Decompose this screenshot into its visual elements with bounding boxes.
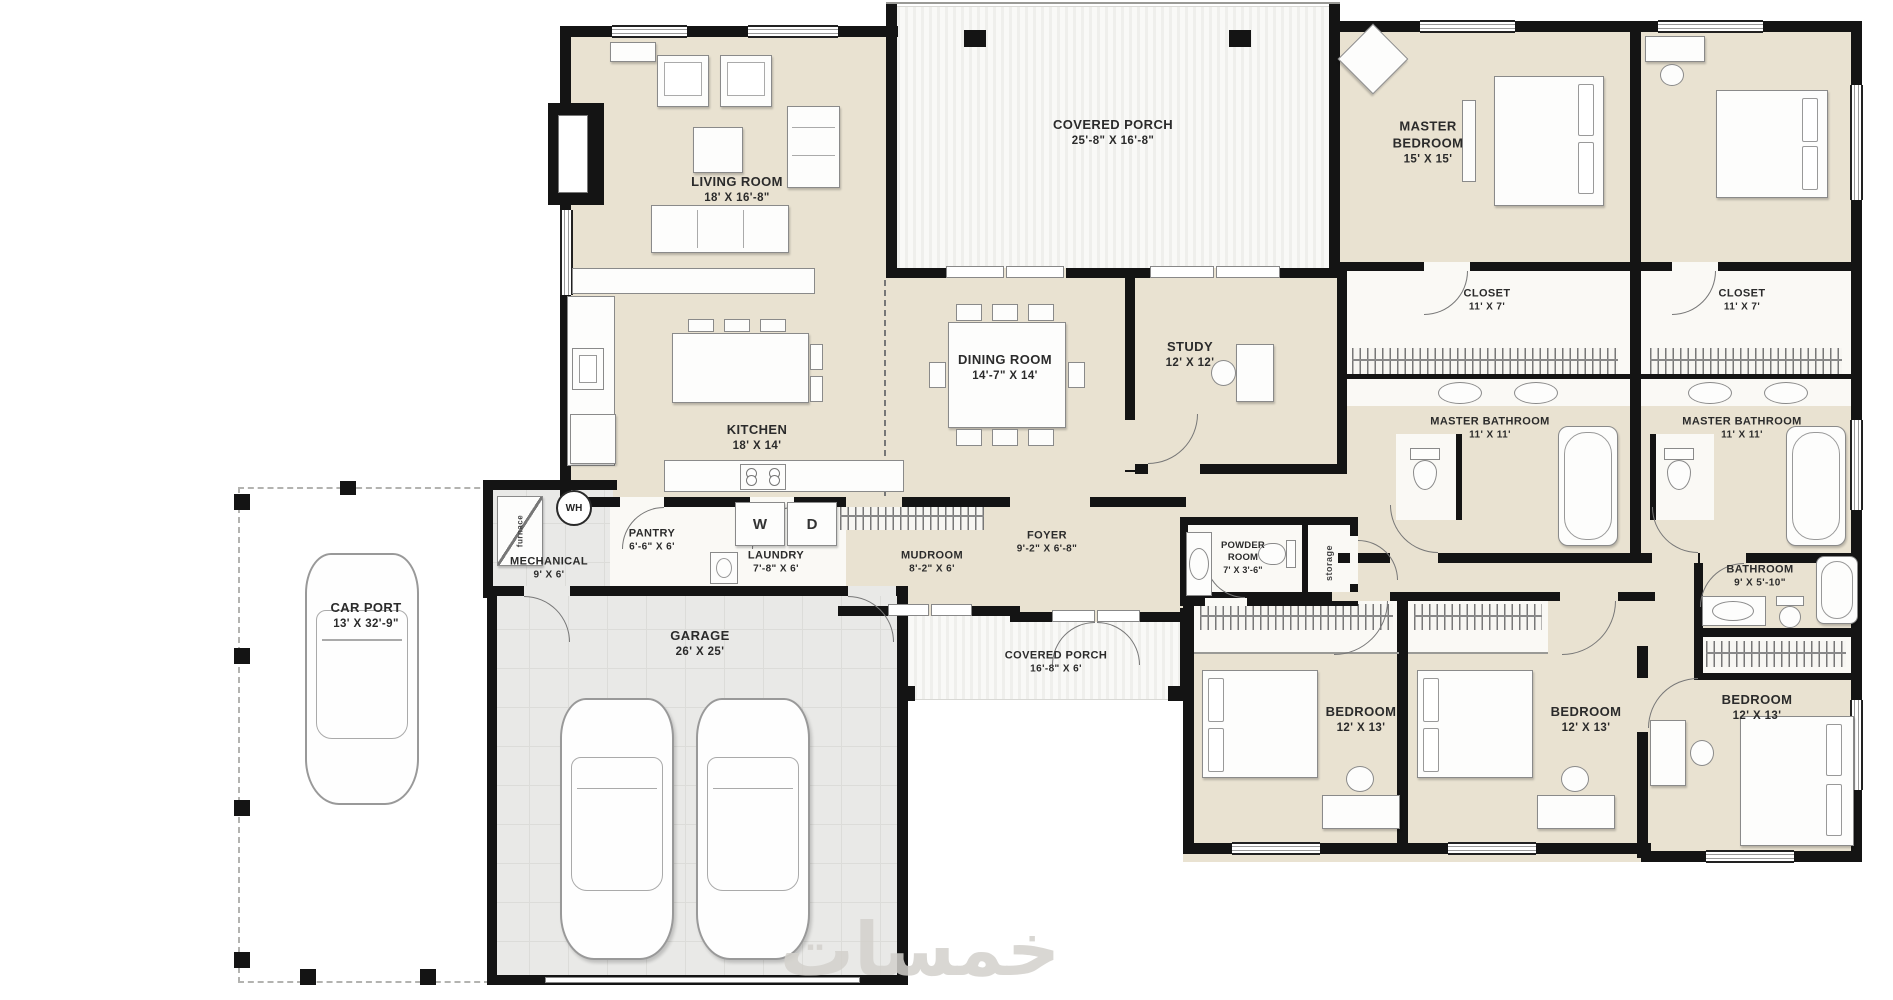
patio-door-leaf	[1216, 266, 1280, 278]
wall	[1456, 434, 1462, 520]
stool	[760, 319, 786, 332]
master-bath-right-label: MASTER BATHROOM11' X 11'	[1677, 414, 1807, 441]
bedroom2-closet-rod	[1414, 604, 1542, 630]
washer-label: W	[753, 516, 767, 533]
room-name: CLOSET	[1718, 286, 1765, 300]
closet-open-line	[1408, 652, 1548, 654]
dining-chair	[1028, 429, 1054, 446]
door-opening	[1652, 553, 1698, 563]
toilet-bowl	[1779, 606, 1801, 628]
room-dims: 15' X 15'	[1370, 152, 1486, 167]
window	[1448, 842, 1536, 855]
desk-chair	[1211, 360, 1236, 386]
closet-right-label: CLOSET11' X 7'	[1718, 286, 1765, 313]
carport-post	[234, 494, 250, 510]
room-dims: 14'-7" X 14'	[958, 369, 1052, 384]
room-dims: 8'-2" X 6'	[901, 563, 963, 576]
front-door-leaf	[1097, 610, 1140, 622]
kitchen-label: KITCHEN18' X 14'	[727, 422, 788, 454]
room-dims: 11' X 11'	[1677, 429, 1807, 442]
door-opening	[1390, 553, 1438, 563]
room-name: FOYER	[1017, 528, 1078, 542]
room-dims: 7'-8" X 6'	[748, 563, 804, 576]
bathtub	[1786, 426, 1846, 546]
pillow	[1826, 784, 1842, 836]
room-name: MASTER BEDROOM	[1370, 119, 1486, 153]
wall	[1337, 268, 1347, 472]
bathroom-label: BATHROOM9' X 5'-10"	[1726, 562, 1793, 589]
door-opening	[848, 586, 896, 596]
toilet-tank	[1286, 540, 1296, 568]
watermark: خمسات	[780, 907, 1060, 993]
covered-porch-bottom-label: COVERED PORCH16'-8" X 6'	[1005, 648, 1107, 675]
master-bedroom-label: MASTER BEDROOM15' X 15'	[1370, 119, 1486, 168]
sink-basin	[716, 558, 732, 578]
stool	[810, 344, 823, 370]
wall	[1329, 4, 1340, 278]
wall	[1694, 628, 1862, 637]
tub-basin	[1821, 561, 1853, 619]
kitchen-island	[672, 333, 809, 403]
dining-chair	[992, 429, 1018, 446]
room-dims: 11' X 11'	[1425, 429, 1555, 442]
door-opening	[1560, 592, 1618, 601]
carport-post	[234, 952, 250, 968]
toilet-tank	[1776, 596, 1804, 606]
wall	[1694, 673, 1862, 680]
room-dims: 26' X 25'	[670, 645, 729, 660]
furnace-label: furnace	[516, 515, 525, 547]
carport-post	[340, 481, 356, 495]
chaise-line	[792, 155, 835, 156]
wall	[487, 586, 497, 985]
powder-room-label: POWDER ROOM7' X 3'-6"	[1211, 540, 1275, 576]
bedroom3-closet-rod	[1706, 641, 1846, 667]
porch-edge-line	[886, 2, 1340, 4]
desk	[1650, 720, 1686, 786]
covered-porch-top-label: COVERED PORCH25'-8" X 16'-8"	[1053, 117, 1173, 149]
living-room-label: LIVING ROOM18' X 16'-8"	[691, 174, 783, 206]
vanity-sink	[1514, 382, 1558, 404]
vanity-sink	[1712, 601, 1754, 621]
door-opening	[1125, 420, 1135, 470]
mechanical-label: MECHANICAL9' X 6'	[510, 554, 588, 581]
carport-post	[300, 969, 316, 985]
garage-label: GARAGE26' X 25'	[670, 628, 729, 660]
burner	[769, 475, 780, 486]
armchair	[657, 55, 709, 107]
room-name: MECHANICAL	[510, 554, 588, 568]
dining-chair	[992, 304, 1018, 321]
bathtub	[1558, 426, 1618, 546]
room-name: MUDROOM	[901, 548, 963, 562]
room-dims: 9' X 6'	[510, 569, 588, 582]
door-opening	[1010, 497, 1090, 507]
sofa-cushion-line	[743, 210, 744, 248]
room-name: BATHROOM	[1726, 562, 1793, 576]
study-label: STUDY12' X 12'	[1166, 339, 1215, 371]
washer: W	[735, 502, 785, 546]
armchair	[720, 55, 772, 107]
vanity-sink	[1688, 382, 1732, 404]
door-opening	[1205, 598, 1247, 606]
room-dims: 12' X 13'	[1722, 709, 1793, 724]
room-name: MASTER BATHROOM	[1425, 414, 1555, 428]
coffee-table	[693, 127, 743, 173]
closet-rod-left	[1352, 348, 1618, 374]
room-dims: 16'-8" X 6'	[1005, 663, 1107, 676]
bedroom3-label: BEDROOM12' X 13'	[1722, 692, 1793, 724]
chaise-lounge	[787, 106, 840, 188]
pillow	[1578, 142, 1594, 194]
carport-post	[420, 969, 436, 985]
pillow	[1423, 728, 1439, 772]
door-opening	[1424, 262, 1470, 271]
dining-chair	[956, 304, 982, 321]
cooktop	[740, 464, 786, 490]
bedroom1-label: BEDROOM12' X 13'	[1326, 704, 1397, 736]
floor-plan: W D furnace WH storage LIVING ROOM18' X …	[0, 0, 1893, 1000]
pillow	[1578, 84, 1594, 136]
wall	[1180, 517, 1358, 525]
room-name: GARAGE	[670, 628, 729, 645]
sofa-cushion-line	[697, 210, 698, 248]
room-name: PANTRY	[629, 526, 675, 540]
porch-column	[1229, 30, 1251, 47]
window	[612, 25, 687, 38]
room-dims: 12' X 13'	[1551, 721, 1622, 736]
door-opening	[1637, 678, 1648, 732]
porch-column	[964, 30, 986, 47]
dining-chair	[1028, 304, 1054, 321]
room-name: POWDER ROOM	[1211, 540, 1275, 565]
carport-post	[234, 648, 250, 664]
room-name: STUDY	[1166, 339, 1215, 356]
closet-open-line	[1194, 652, 1399, 654]
dining-chair	[956, 429, 982, 446]
door-opening	[846, 497, 902, 507]
door-opening	[1148, 464, 1200, 474]
room-dims: 25'-8" X 16'-8"	[1053, 134, 1173, 149]
desk-chair	[1346, 766, 1374, 792]
wall	[1341, 374, 1630, 379]
stool	[724, 319, 750, 332]
window	[748, 25, 838, 38]
sofa	[651, 205, 789, 253]
desk-chair	[1561, 766, 1589, 792]
burner	[746, 475, 757, 486]
bedroom2-label: BEDROOM12' X 13'	[1551, 704, 1622, 736]
pillow	[1208, 728, 1224, 772]
storage-label: storage	[1324, 545, 1334, 581]
porch-door-leaf	[888, 604, 929, 616]
kitchen-sink	[572, 348, 604, 390]
water-heater-label: WH	[566, 503, 583, 514]
pillow	[1802, 146, 1818, 190]
room-name: COVERED PORCH	[1005, 648, 1107, 662]
sideboard-counter	[572, 268, 815, 294]
porch-column	[900, 686, 915, 701]
carport-post	[234, 800, 250, 816]
window	[1420, 20, 1515, 33]
stool	[810, 376, 823, 402]
wall	[560, 26, 898, 37]
window	[1850, 85, 1863, 200]
powder-sink	[1189, 548, 1209, 580]
wall	[1338, 262, 1630, 271]
room-name: DINING ROOM	[958, 352, 1052, 369]
room-name: MASTER BATHROOM	[1677, 414, 1807, 428]
tub-basin	[1792, 432, 1840, 540]
door-opening	[1672, 262, 1718, 271]
bathtub	[1816, 556, 1858, 624]
room-name: CAR PORT	[330, 600, 401, 617]
window	[1850, 420, 1863, 510]
vanity-left	[1341, 378, 1630, 406]
room-name: COVERED PORCH	[1053, 117, 1173, 134]
patio-door-leaf	[1006, 266, 1064, 278]
room-name: BEDROOM	[1326, 704, 1397, 721]
room-dims: 12' X 13'	[1326, 721, 1397, 736]
toilet-tank	[1410, 448, 1440, 460]
wall	[483, 480, 617, 490]
patio-door-leaf	[1150, 266, 1214, 278]
front-door-leaf	[1052, 610, 1095, 622]
room-dims: 18' X 16'-8"	[691, 191, 783, 206]
desk-chair	[1690, 740, 1714, 766]
water-heater: WH	[556, 490, 592, 526]
pillow	[1826, 724, 1842, 776]
carport-car	[305, 553, 419, 805]
room-dims: 18' X 14'	[727, 439, 788, 454]
tub-basin	[1564, 432, 1612, 540]
room-name: CLOSET	[1463, 286, 1510, 300]
vanity-sink	[1764, 382, 1808, 404]
window	[1232, 842, 1320, 855]
desk	[1537, 795, 1615, 829]
pillow	[1423, 678, 1439, 722]
laundry-label: LAUNDRY7'-8" X 6'	[748, 548, 804, 575]
room-dims: 13' X 32'-9"	[330, 617, 401, 632]
room-dims: 7' X 3'-6"	[1211, 565, 1275, 577]
desk	[1236, 344, 1274, 402]
dryer-label: D	[807, 516, 818, 533]
closet-left-label: CLOSET11' X 7'	[1463, 286, 1510, 313]
wall	[1641, 374, 1851, 379]
dining-chair	[929, 362, 946, 388]
toilet-tank	[1664, 448, 1694, 460]
door-opening	[524, 586, 570, 596]
garage-car	[560, 698, 674, 960]
chaise-line	[792, 127, 835, 128]
armchair-cushion	[664, 62, 702, 96]
dryer: D	[787, 502, 837, 546]
window	[1706, 850, 1794, 863]
master-bath-left-label: MASTER BATHROOM11' X 11'	[1425, 414, 1555, 441]
room-dims: 9'-2" X 6'-8"	[1017, 543, 1078, 556]
desk-chair	[1660, 64, 1684, 86]
armchair-cushion	[727, 62, 765, 96]
dining-room-label: DINING ROOM14'-7" X 14'	[958, 352, 1052, 384]
room-dims: 12' X 12'	[1166, 356, 1215, 371]
refrigerator	[570, 414, 616, 464]
pillow	[1208, 678, 1224, 722]
fireplace-firebox	[558, 115, 588, 193]
mudroom-label: MUDROOM8'-2" X 6'	[901, 548, 963, 575]
pillow	[1802, 98, 1818, 142]
console-table	[610, 42, 656, 62]
room-dims: 11' X 7'	[1463, 301, 1510, 314]
desk	[1645, 36, 1705, 62]
room-dims: 9' X 5'-10"	[1726, 577, 1793, 590]
room-name: BEDROOM	[1551, 704, 1622, 721]
dining-chair	[1068, 362, 1085, 388]
wall	[886, 4, 897, 278]
vanity-right	[1641, 378, 1851, 406]
laundry-sink	[710, 552, 738, 584]
patio-door-leaf	[946, 266, 1004, 278]
wall	[1329, 21, 1862, 32]
sink-basin	[579, 355, 597, 383]
room-name: LAUNDRY	[748, 548, 804, 562]
vanity-sink	[1438, 382, 1482, 404]
foyer-label: FOYER9'-2" X 6'-8"	[1017, 528, 1078, 555]
door-opening	[1332, 592, 1390, 601]
window	[1658, 20, 1763, 33]
closet-rod-right	[1650, 348, 1842, 374]
carport-label: CAR PORT13' X 32'-9"	[330, 600, 401, 632]
pantry-label: PANTRY6'-6" X 6'	[629, 526, 675, 553]
stool	[688, 319, 714, 332]
door-opening	[1350, 536, 1358, 584]
room-name: KITCHEN	[727, 422, 788, 439]
desk	[1322, 795, 1400, 829]
room-dims: 11' X 7'	[1718, 301, 1765, 314]
porch-door-leaf	[931, 604, 972, 616]
porch-column	[1168, 686, 1183, 701]
room-name: BEDROOM	[1722, 692, 1793, 709]
mudroom-hooks	[840, 504, 984, 530]
door-opening	[620, 497, 664, 507]
room-dims: 6'-6" X 6'	[629, 541, 675, 554]
room-name: LIVING ROOM	[691, 174, 783, 191]
wall	[483, 480, 493, 598]
wall	[1630, 21, 1641, 562]
